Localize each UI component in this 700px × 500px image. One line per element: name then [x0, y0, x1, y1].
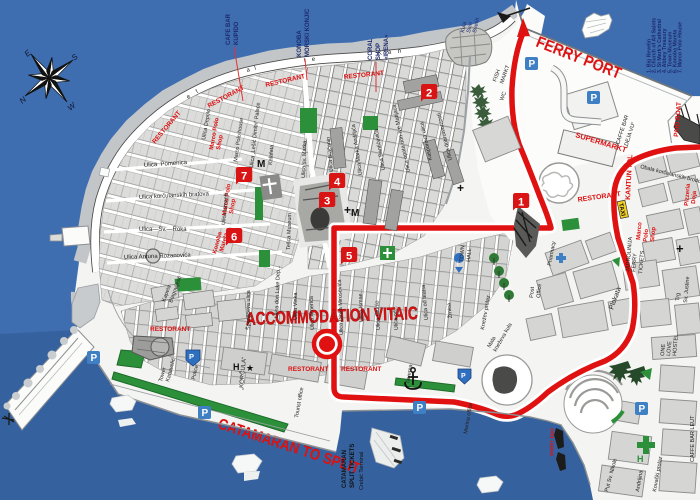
svg-text:CAFFE BAR LEUT: CAFFE BAR LEUT [690, 415, 696, 462]
svg-text:Ulica Arnerića: Ulica Arnerića [309, 295, 316, 330]
svg-text:MORSKI KONJIC: MORSKI KONJIC [305, 8, 311, 57]
svg-text:Post: Post [529, 286, 536, 298]
svg-text:H: H [233, 362, 240, 372]
svg-text:+: + [457, 181, 464, 195]
svg-text:Trg: Trg [675, 293, 682, 302]
svg-text:Polo: Polo [643, 228, 650, 242]
svg-text:Ulica Ismae...: Ulica Ismae... [358, 288, 365, 322]
svg-text:1: 1 [518, 197, 524, 209]
svg-text:6: 6 [231, 232, 237, 244]
svg-text:7. Marco Polo House: 7. Marco Polo House [678, 22, 684, 73]
svg-text:SHOP: SHOP [376, 43, 382, 60]
svg-text:4: 4 [334, 177, 341, 189]
svg-text:P: P [639, 404, 646, 415]
svg-text:water taxi: water taxi [549, 428, 556, 457]
svg-text:HALL: HALL [466, 248, 473, 262]
svg-text:CAFE BAR: CAFE BAR [226, 13, 232, 45]
svg-text:+: + [676, 241, 684, 256]
svg-text:Crebić Terminal: Crebić Terminal [359, 452, 365, 490]
svg-text:5: 5 [346, 251, 352, 263]
svg-text:RESTORANT: RESTORANT [341, 366, 381, 373]
svg-text:P: P [529, 59, 536, 70]
svg-text:CORAL: CORAL [368, 38, 374, 60]
svg-text:P: P [417, 403, 424, 414]
svg-text:RESTORANT: RESTORANT [150, 326, 190, 333]
svg-text:H: H [637, 454, 644, 464]
svg-text:KONOBA: KONOBA [297, 30, 303, 57]
svg-text:RESTORANT: RESTORANT [288, 366, 328, 373]
svg-text:SPLIT TICKETS: SPLIT TICKETS [350, 444, 356, 488]
svg-text:Office: Office [536, 283, 543, 298]
svg-text:P: P [189, 352, 194, 361]
svg-text:KUPIDO: KUPIDO [234, 21, 240, 45]
svg-text:P: P [461, 373, 466, 380]
svg-text:P: P [202, 408, 209, 419]
svg-text:M: M [351, 208, 359, 219]
svg-text:2: 2 [426, 88, 432, 100]
svg-text:Ulica—Sv.—Roka: Ulica—Sv.—Roka [139, 227, 187, 233]
svg-text:Španjićeva ulica: Španjićeva ulica [245, 289, 252, 330]
svg-text:CATAMARAN: CATAMARAN [342, 450, 348, 488]
svg-text:M: M [257, 159, 265, 170]
svg-text:P: P [591, 93, 598, 104]
svg-text:3: 3 [324, 196, 330, 208]
svg-text:P: P [91, 353, 98, 364]
svg-text:Ulica Vinka: Ulica Vinka [293, 292, 299, 320]
svg-text:Doja: Doja [691, 190, 698, 204]
svg-text:7: 7 [241, 171, 247, 183]
svg-text:+: + [344, 203, 351, 217]
svg-text:«IRENA»: «IRENA» [384, 34, 390, 60]
